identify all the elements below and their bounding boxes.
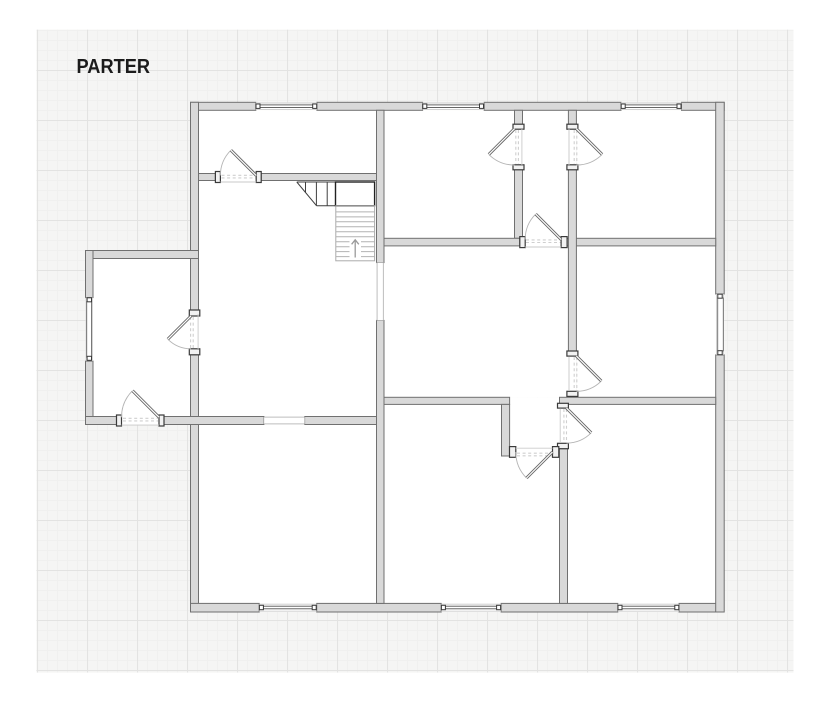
svg-text:PARTER: PARTER xyxy=(77,56,151,78)
